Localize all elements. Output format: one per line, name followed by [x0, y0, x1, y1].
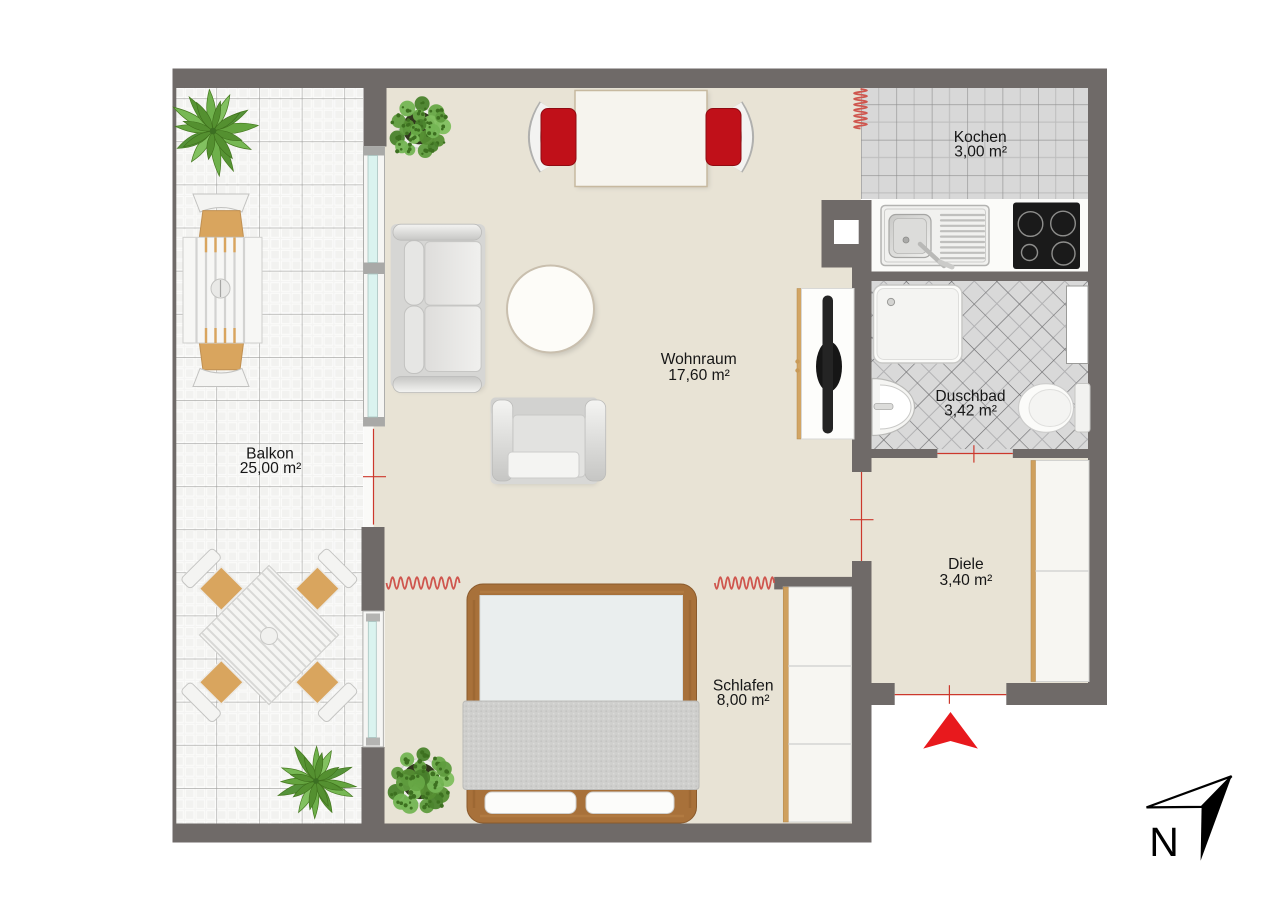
svg-text:Diele: Diele: [948, 556, 984, 573]
svg-text:3,42 m²: 3,42 m²: [944, 402, 997, 419]
svg-text:3,00 m²: 3,00 m²: [954, 144, 1007, 161]
svg-text:17,60 m²: 17,60 m²: [668, 367, 730, 384]
svg-text:8,00 m²: 8,00 m²: [717, 692, 770, 709]
svg-text:N: N: [1149, 819, 1179, 865]
svg-text:3,40 m²: 3,40 m²: [939, 572, 992, 589]
svg-text:25,00 m²: 25,00 m²: [240, 460, 302, 477]
svg-text:Wohnraum: Wohnraum: [661, 351, 737, 368]
